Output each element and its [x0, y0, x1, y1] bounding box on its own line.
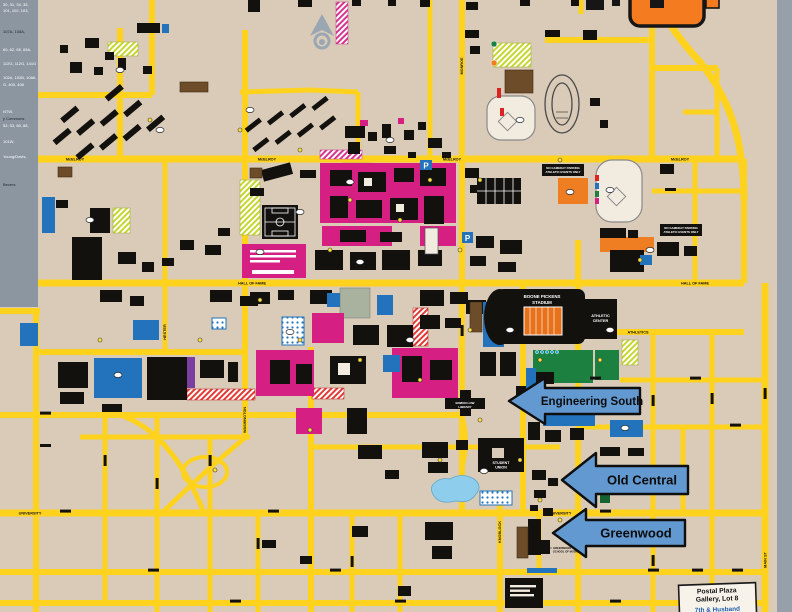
svg-text:y Commons: y Commons	[3, 116, 24, 121]
svg-text:102A, 102B, 108A,: 102A, 102B, 108A,	[3, 75, 37, 80]
svg-text:BOONE PICKENS: BOONE PICKENS	[524, 294, 561, 299]
svg-text:NTW,: NTW,	[3, 109, 13, 114]
svg-text:ATHLETIC: ATHLETIC	[591, 314, 610, 318]
svg-text:MAIN ST: MAIN ST	[764, 552, 768, 568]
svg-text:ATHLETICS: ATHLETICS	[627, 330, 648, 334]
svg-text:MONROE: MONROE	[460, 57, 464, 75]
svg-text:Bevers: Bevers	[3, 182, 15, 187]
svg-text:GREENWOOD: GREENWOOD	[553, 546, 571, 550]
student-union: STUDENT UNION	[478, 438, 524, 472]
svg-text:30, 31, 34, 35,: 30, 31, 34, 35,	[3, 2, 29, 7]
svg-text:LIBRARY: LIBRARY	[458, 405, 471, 409]
svg-text:McELROY: McELROY	[443, 157, 462, 161]
svg-text:ATHLETIC EVENTS ONLY: ATHLETIC EVENTS ONLY	[545, 170, 580, 174]
gameday-parking-note-2: NO GAMEDAY PARKING ATHLETIC EVENTS ONLY	[660, 224, 702, 236]
svg-text:Postal Plaza: Postal Plaza	[697, 587, 737, 595]
athletic-center: ATHLETIC CENTER	[584, 299, 617, 339]
svg-text:KNOBLOCK: KNOBLOCK	[498, 521, 502, 543]
svg-text:SCHOOL OF MUSIC: SCHOOL OF MUSIC	[553, 550, 578, 554]
campus-map-canvas: P P BOONE PICKENS STADIUM ATHLETIC CENTE…	[0, 0, 792, 612]
svg-text:Young/Davis,: Young/Davis,	[3, 154, 26, 159]
campus-map-screenshot: P P BOONE PICKENS STADIUM ATHLETIC CENTE…	[0, 0, 792, 612]
svg-text:WASHINGTON: WASHINGTON	[243, 407, 247, 433]
svg-text:UNIVERSITY: UNIVERSITY	[549, 511, 572, 515]
svg-text:McELROY: McELROY	[258, 157, 277, 161]
svg-text:101, 102, 103,: 101, 102, 103,	[3, 8, 29, 13]
svg-text:Greenwood: Greenwood	[600, 526, 672, 541]
svg-text:ATHLETIC EVENTS ONLY: ATHLETIC EVENTS ONLY	[663, 230, 698, 234]
svg-text:Gallery, Lot 8: Gallery, Lot 8	[696, 595, 739, 603]
svg-text:CENTER: CENTER	[593, 319, 609, 323]
svg-text:Engineering South: Engineering South	[541, 396, 643, 408]
baseball-field-2	[595, 160, 642, 222]
boone-pickens-stadium: BOONE PICKENS STADIUM	[484, 289, 585, 345]
svg-text:101W,: 101W,	[3, 139, 14, 144]
gameday-parking-note-1: NO GAMEDAY PARKING ATHLETIC EVENTS ONLY	[542, 164, 584, 176]
svg-text:P: P	[423, 162, 429, 171]
svg-text:UNIVERSITY: UNIVERSITY	[19, 511, 42, 515]
right-margin-strip	[777, 0, 792, 612]
svg-text:107A, 108A,: 107A, 108A,	[3, 29, 25, 34]
svg-text:112G, 112G, 141G: 112G, 112G, 141G	[3, 61, 36, 66]
svg-text:7th & Husband: 7th & Husband	[695, 606, 740, 612]
svg-text:STUDENT: STUDENT	[493, 461, 511, 465]
svg-text:McELROY: McELROY	[671, 157, 690, 161]
svg-text:UNION: UNION	[495, 466, 507, 470]
svg-text:McELROY: McELROY	[66, 157, 85, 161]
svg-text:HALL OF FAME: HALL OF FAME	[681, 281, 709, 285]
svg-text:P: P	[465, 234, 471, 243]
svg-text:G, 400, 408: G, 400, 408	[3, 82, 25, 87]
svg-text:HALL OF FAME: HALL OF FAME	[238, 281, 266, 285]
svg-text:52, 53, 80, 88,: 52, 53, 80, 88,	[3, 123, 29, 128]
svg-text:HESTER: HESTER	[163, 324, 167, 340]
svg-text:60, 62, 65, 65A,: 60, 62, 65, 65A,	[3, 47, 31, 52]
postal-plaza-callout[interactable]: Postal Plaza Gallery, Lot 8 7th & Husban…	[679, 583, 757, 612]
svg-text:Old Central: Old Central	[607, 473, 677, 488]
svg-text:STADIUM: STADIUM	[532, 300, 552, 305]
legend-strip: 30, 31, 34, 35, 101, 102, 103, 107A, 108…	[0, 0, 38, 307]
